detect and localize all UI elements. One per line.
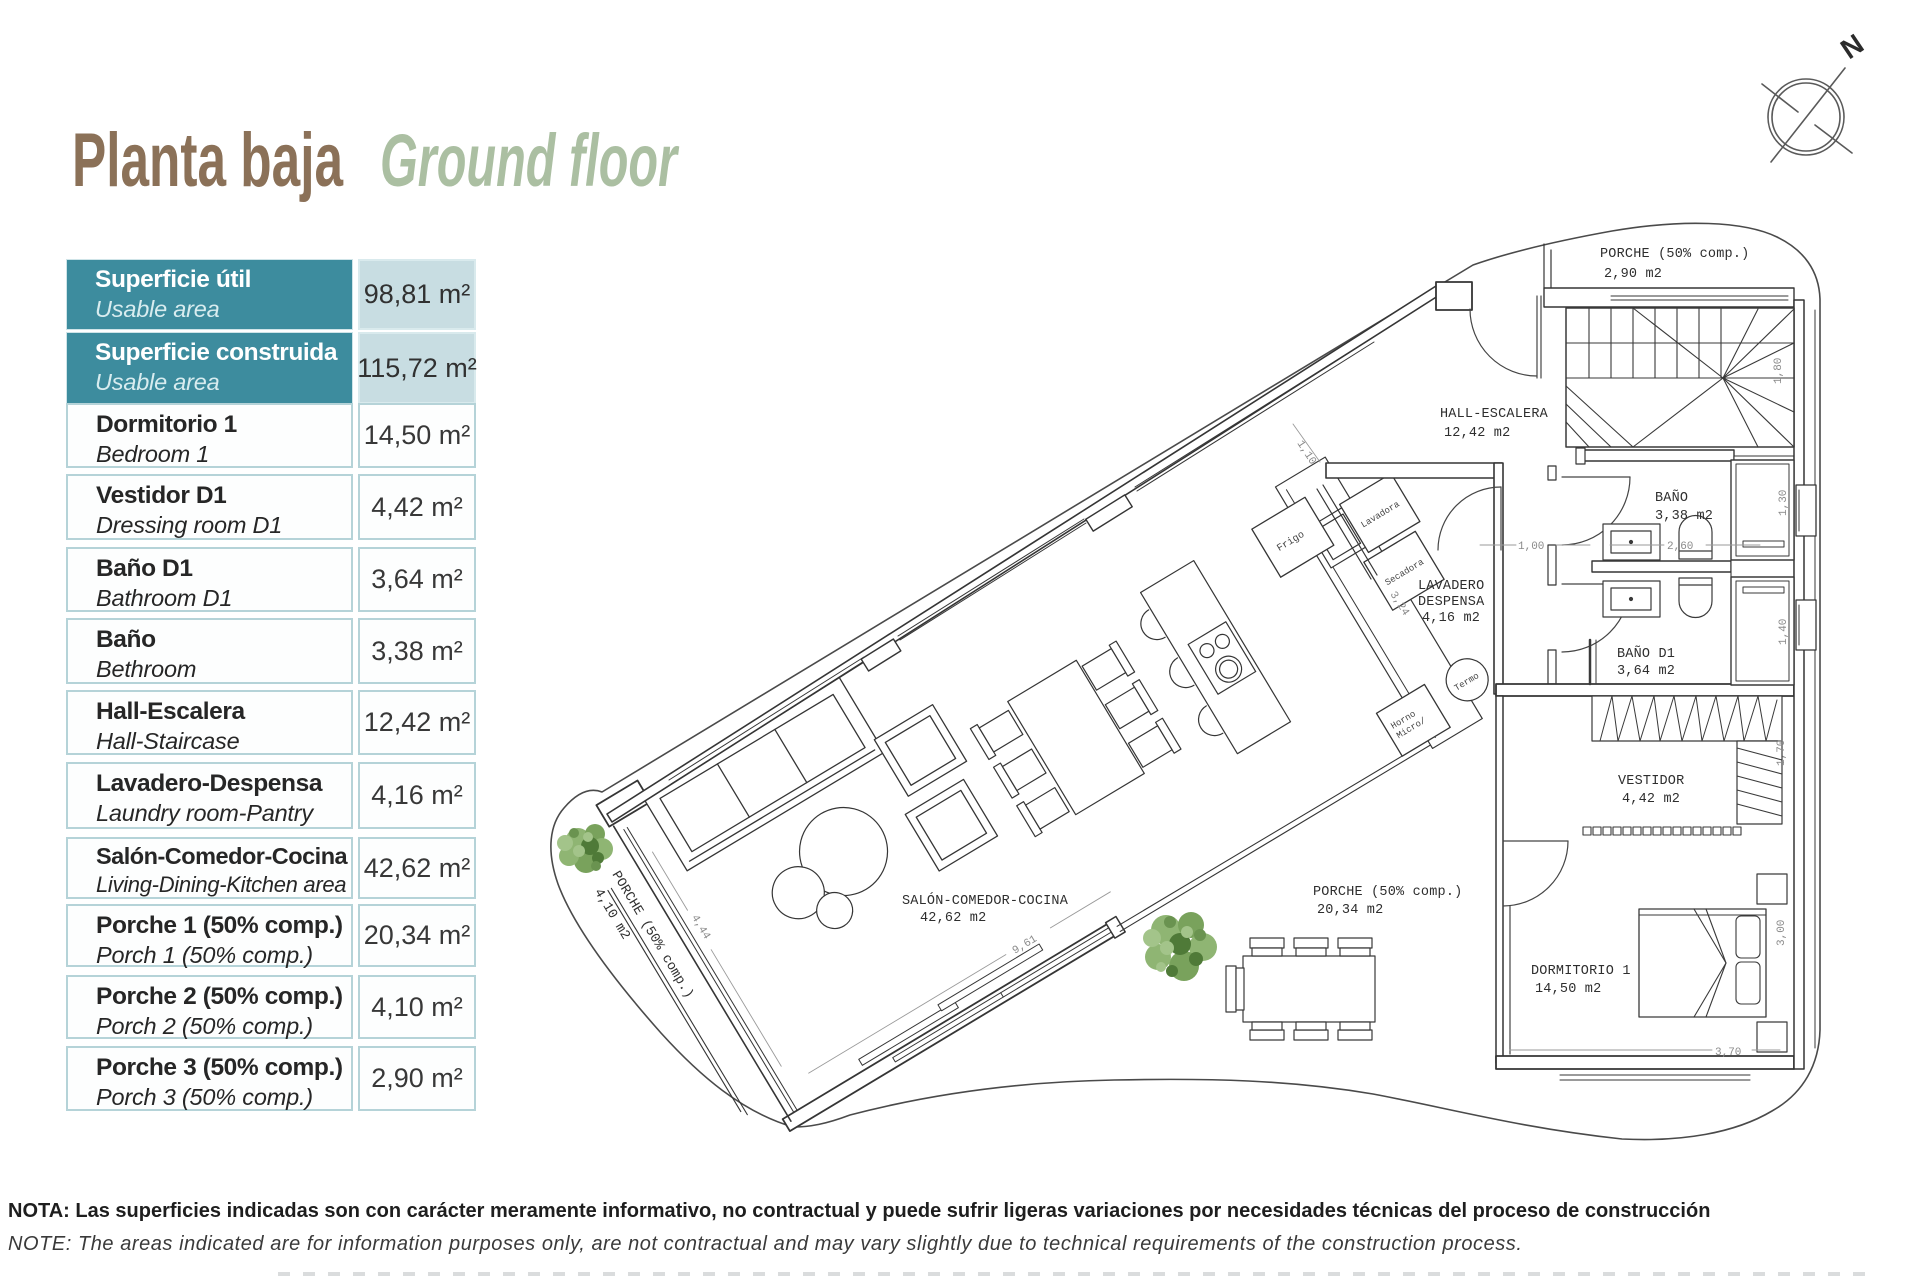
svg-text:3,38 m2: 3,38 m2 (1655, 509, 1713, 524)
svg-text:3,70: 3,70 (1715, 1047, 1741, 1059)
svg-text:DORMITORIO 1: DORMITORIO 1 (1531, 964, 1631, 979)
svg-text:20,34 m2: 20,34 m2 (1317, 903, 1383, 918)
svg-text:4,16 m2: 4,16 m2 (1422, 611, 1480, 626)
svg-text:42,62 m2: 42,62 m2 (920, 911, 986, 926)
svg-text:4,44: 4,44 (688, 913, 712, 942)
svg-text:VESTIDOR: VESTIDOR (1618, 774, 1684, 789)
svg-text:1,10: 1,10 (1294, 439, 1318, 468)
svg-text:1,00: 1,00 (1518, 541, 1544, 553)
svg-text:BAÑO: BAÑO (1655, 490, 1688, 506)
svg-text:DESPENSA: DESPENSA (1418, 595, 1485, 610)
svg-text:PORCHE (50% comp.): PORCHE (50% comp.) (1313, 885, 1462, 900)
svg-text:2,90 m2: 2,90 m2 (1604, 267, 1662, 282)
svg-text:14,50 m2: 14,50 m2 (1535, 982, 1601, 997)
svg-text:12,42 m2: 12,42 m2 (1444, 426, 1510, 441)
svg-text:HALL-ESCALERA: HALL-ESCALERA (1440, 407, 1549, 422)
svg-text:SALÓN-COMEDOR-COCINA: SALÓN-COMEDOR-COCINA (902, 893, 1069, 909)
svg-text:N: N (1835, 28, 1869, 65)
svg-text:2,60: 2,60 (1667, 541, 1693, 553)
svg-text:PORCHE (50% comp.): PORCHE (50% comp.) (1600, 247, 1749, 262)
svg-text:LAVADERO: LAVADERO (1418, 579, 1484, 594)
svg-text:4,42 m2: 4,42 m2 (1622, 792, 1680, 807)
svg-text:3,64 m2: 3,64 m2 (1617, 664, 1675, 679)
svg-text:1,30: 1,30 (1778, 490, 1790, 516)
svg-text:BAÑO D1: BAÑO D1 (1617, 646, 1675, 662)
svg-text:3,00: 3,00 (1776, 920, 1788, 946)
svg-text:1,70: 1,70 (1776, 740, 1788, 766)
svg-text:1,40: 1,40 (1778, 619, 1790, 645)
svg-text:1,80: 1,80 (1773, 358, 1785, 384)
